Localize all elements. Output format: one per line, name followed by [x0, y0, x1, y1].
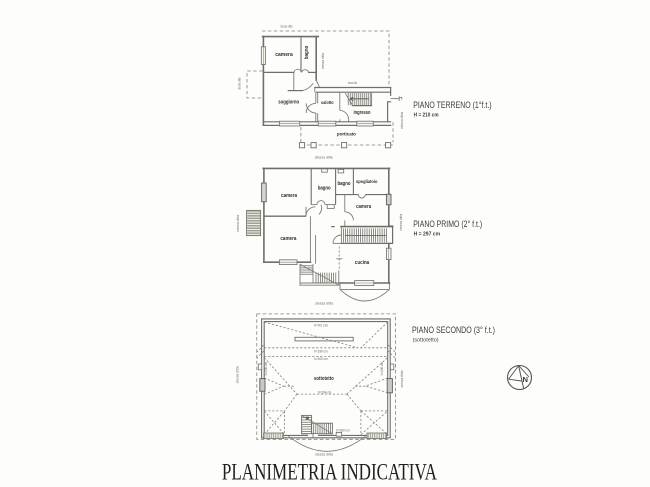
svg-text:cucina: cucina: [355, 260, 370, 266]
svg-text:soggiorno: soggiorno: [278, 100, 299, 106]
svg-text:stessa ditta: stessa ditta: [321, 52, 325, 69]
svg-text:N: N: [522, 375, 527, 384]
svg-text:stessa ditta: stessa ditta: [315, 453, 334, 457]
svg-text:PIANO SECONDO (3° f.t.): PIANO SECONDO (3° f.t.): [412, 325, 495, 335]
svg-text:stessa ditta: stessa ditta: [399, 213, 403, 231]
svg-text:stessa ditta: stessa ditta: [281, 24, 294, 28]
svg-text:H = 210 cm: H = 210 cm: [414, 113, 439, 119]
svg-text:camera: camera: [281, 193, 297, 199]
svg-text:h=200 cm: h=200 cm: [264, 362, 268, 376]
svg-text:salotto: salotto: [321, 100, 334, 106]
svg-text:stessa ditta: stessa ditta: [238, 77, 242, 90]
svg-text:h=92 cm: h=92 cm: [314, 323, 328, 327]
svg-text:camera: camera: [275, 52, 293, 58]
svg-text:h=200 cm: h=200 cm: [314, 357, 328, 361]
svg-text:stessa ditta: stessa ditta: [315, 301, 334, 305]
svg-text:bagno: bagno: [338, 181, 351, 187]
svg-text:stessa ditta: stessa ditta: [315, 156, 334, 160]
svg-text:stessa ditta: stessa ditta: [348, 81, 357, 85]
svg-text:sottotetto: sottotetto: [314, 376, 334, 382]
svg-text:H = 297 cm: H = 297 cm: [414, 232, 441, 238]
svg-text:ingresso: ingresso: [354, 110, 371, 116]
svg-text:PLANIMETRIA INDICATIVA: PLANIMETRIA INDICATIVA: [222, 459, 437, 485]
svg-text:(sottotetto): (sottotetto): [413, 337, 439, 343]
svg-text:camera: camera: [356, 204, 371, 210]
svg-text:h=204 cm: h=204 cm: [318, 390, 332, 394]
svg-text:camera: camera: [280, 236, 296, 242]
svg-text:PIANO TERRENO (1°f.t.): PIANO TERRENO (1°f.t.): [413, 100, 491, 110]
svg-text:porticato: porticato: [337, 131, 356, 137]
svg-text:stessa ditta: stessa ditta: [400, 111, 404, 129]
svg-text:bagno: bagno: [318, 186, 331, 192]
svg-text:stessa ditta: stessa ditta: [400, 370, 404, 388]
svg-text:stessa ditta: stessa ditta: [236, 366, 240, 384]
svg-text:h=190 cm: h=190 cm: [314, 349, 328, 353]
svg-text:h=200 cm: h=200 cm: [380, 362, 384, 376]
svg-text:stessa ditta: stessa ditta: [236, 214, 240, 232]
svg-text:spogliatoio: spogliatoio: [356, 179, 377, 185]
svg-text:h=260 cm: h=260 cm: [336, 428, 350, 432]
svg-text:bagno: bagno: [304, 46, 310, 60]
svg-text:PIANO PRIMO (2° f.t.): PIANO PRIMO (2° f.t.): [413, 219, 482, 229]
